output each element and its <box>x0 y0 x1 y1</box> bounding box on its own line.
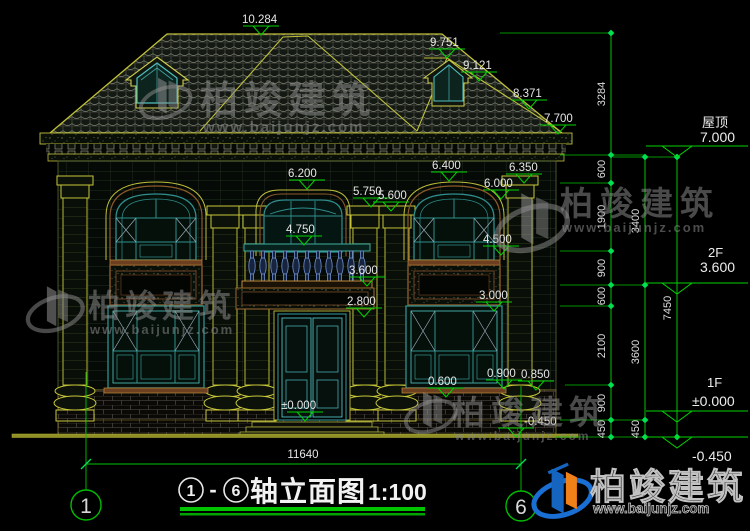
level-value: 7.000 <box>700 129 735 145</box>
watermark-left: 柏竣建筑 www.baijunjz.com <box>23 286 236 337</box>
chain-dim: 600 <box>596 160 608 178</box>
watermark-url: www.baijunjz.com <box>561 220 706 235</box>
dim-label: 10.284 <box>242 14 278 26</box>
axis-number: 1 <box>80 495 92 518</box>
watermark-url: www.baijunjz.com <box>202 119 364 136</box>
dim-label: 3.000 <box>479 290 508 302</box>
dim-label: 2.800 <box>347 296 376 308</box>
watermark-brand: 柏竣建筑 <box>88 288 236 324</box>
level-name: 2F <box>708 245 723 260</box>
title-dash: - <box>209 477 216 502</box>
chain-dim: 600 <box>596 287 608 305</box>
watermark-url: www.baijunjz.com <box>89 322 234 337</box>
dim-label: 6.350 <box>509 162 538 174</box>
level-value: 3.600 <box>700 259 735 275</box>
level-markers: 屋顶 7.000 2F 3.600 1F ±0.000 -0.450 <box>646 115 748 464</box>
cad-canvas: 10.284 9.751 9.121 8.371 7.700 6.200 6.4… <box>0 0 750 531</box>
elevation-drawing: 10.284 9.751 9.121 8.371 7.700 6.200 6.4… <box>0 0 750 531</box>
dim-label: 4.750 <box>286 224 315 236</box>
title-axis-from: 1 <box>187 483 196 500</box>
right-wing <box>402 182 506 393</box>
watermark-brand: 柏竣建筑 <box>200 80 376 122</box>
window-2f-right <box>404 182 504 265</box>
total-width-dim: 11640 <box>287 449 318 461</box>
eave-cornice <box>40 133 572 161</box>
watermark-brand: 柏竣建筑 <box>560 185 720 222</box>
chain-dim: 3600 <box>630 340 642 364</box>
dim-label: 6.200 <box>288 168 317 180</box>
dim-label: 0.900 <box>487 368 516 380</box>
title-text: 轴立面图 <box>250 475 366 507</box>
title-underline2 <box>180 513 425 516</box>
level-value: ±0.000 <box>692 393 735 409</box>
dim-label: 9.751 <box>430 37 459 49</box>
dim-label: ±0.000 <box>281 400 316 412</box>
title-axis-to: 6 <box>232 483 241 500</box>
brand-logo-corner: 柏竣建筑 www.baijunjz.com <box>529 464 746 523</box>
dim-label: 6.000 <box>484 178 513 190</box>
watermark-url: www.baijunjz.com <box>454 429 591 443</box>
chain-dim: 2100 <box>596 334 608 358</box>
title-underline <box>180 507 425 511</box>
title-scale: 1:100 <box>368 479 427 505</box>
level-name: 1F <box>707 375 722 390</box>
axis-number: 6 <box>515 496 527 519</box>
dim-label: 9.121 <box>463 60 492 72</box>
level-name: 屋顶 <box>702 115 728 130</box>
dim-label: 7.700 <box>544 113 573 125</box>
chain-dim: 450 <box>630 420 642 438</box>
dim-label: 5.600 <box>378 190 407 202</box>
dim-label: 0.850 <box>521 369 550 381</box>
brand-url: www.baijunjz.com <box>592 501 710 516</box>
dim-label: 6.400 <box>432 160 461 172</box>
level-value: -0.450 <box>692 448 732 464</box>
chain-dim: 900 <box>596 259 608 277</box>
window-2f-left <box>106 182 206 265</box>
dim-label: 3.600 <box>349 265 378 277</box>
watermark-right: 柏竣建筑 www.baijunjz.com <box>491 185 720 259</box>
chain-dim: 7450 <box>662 296 674 320</box>
dim-label: 8.371 <box>513 88 542 100</box>
drawing-title: 1 - 6 轴立面图 1:100 <box>179 475 427 516</box>
watermark-brand: 柏竣建筑 <box>452 394 608 431</box>
chain-dim: 3284 <box>596 82 608 106</box>
baijun-logo-icon <box>529 464 596 523</box>
dim-label: 0.600 <box>428 376 457 388</box>
